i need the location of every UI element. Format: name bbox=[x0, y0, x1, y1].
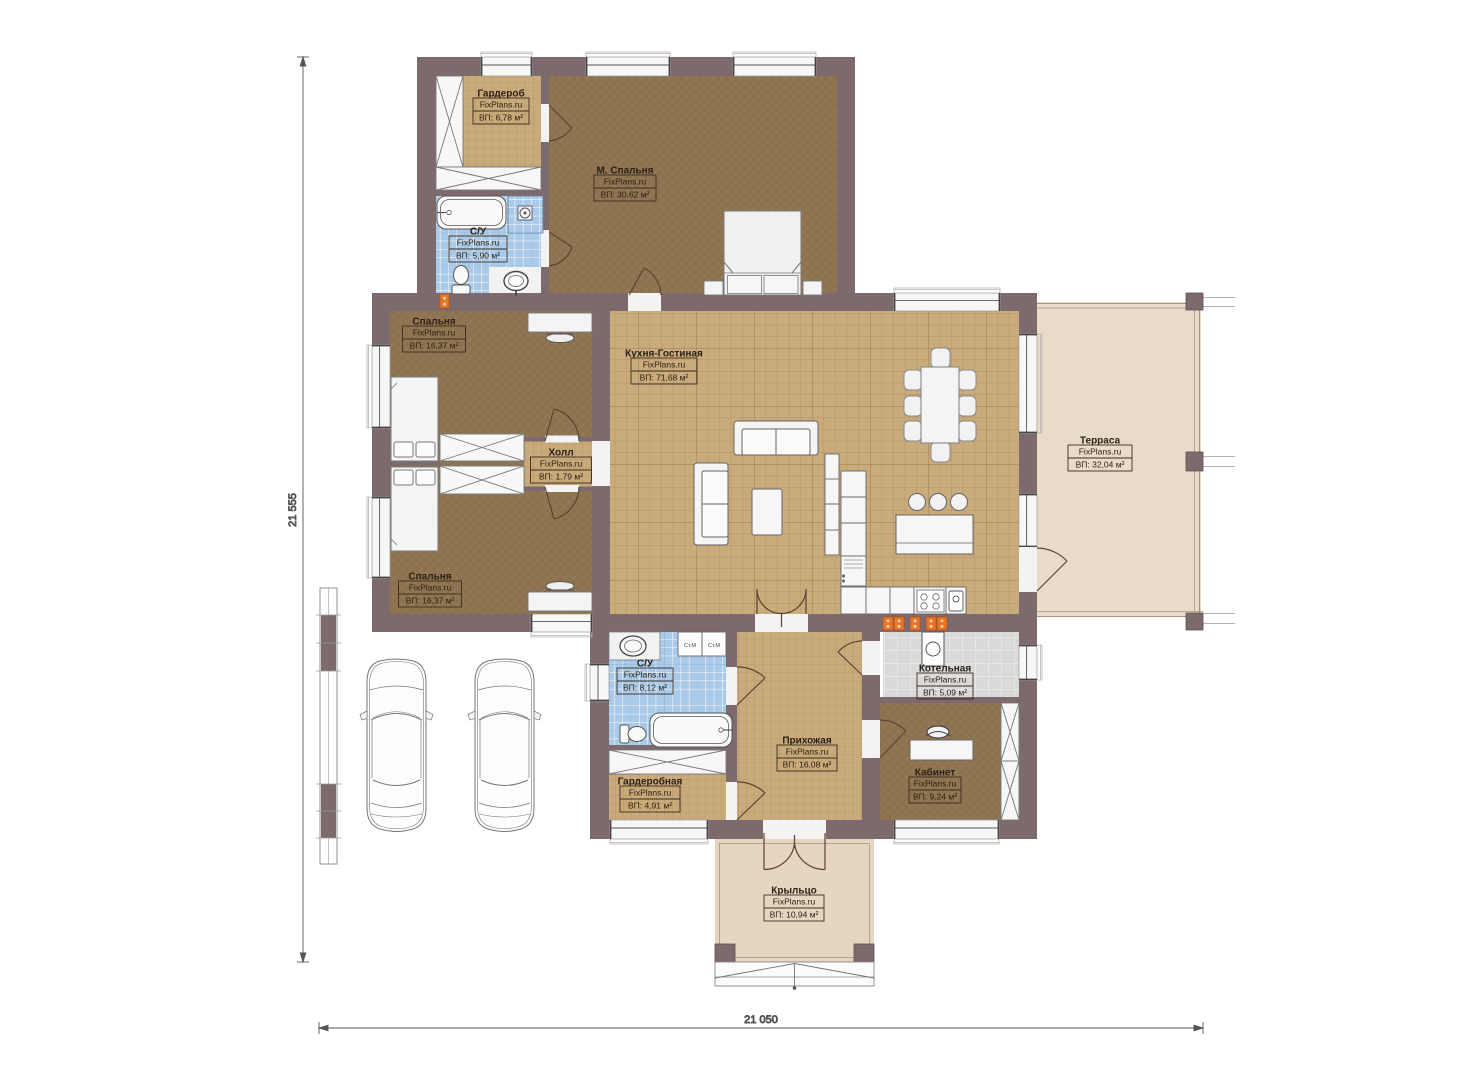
svg-text:FixPlans.ru: FixPlans.ru bbox=[786, 747, 829, 757]
svg-text:ВП: 8,12 м²: ВП: 8,12 м² bbox=[623, 683, 667, 693]
svg-text:FixPlans.ru: FixPlans.ru bbox=[643, 360, 686, 370]
svg-text:ВП: 16,37 м²: ВП: 16,37 м² bbox=[410, 341, 459, 351]
svg-text:Ст.М: Ст.М bbox=[708, 643, 720, 649]
svg-text:FixPlans.ru: FixPlans.ru bbox=[624, 670, 667, 680]
svg-text:ВП: 1,79 м²: ВП: 1,79 м² bbox=[539, 472, 583, 482]
svg-text:FixPlans.ru: FixPlans.ru bbox=[540, 459, 583, 469]
svg-text:FixPlans.ru: FixPlans.ru bbox=[480, 100, 523, 110]
svg-text:FixPlans.ru: FixPlans.ru bbox=[924, 675, 967, 685]
svg-text:ВП: 32,04 м²: ВП: 32,04 м² bbox=[1076, 460, 1125, 470]
svg-text:ВП: 6,78 м²: ВП: 6,78 м² bbox=[479, 113, 523, 123]
svg-text:ВП: 5,90 м²: ВП: 5,90 м² bbox=[456, 251, 500, 261]
svg-text:FixPlans.ru: FixPlans.ru bbox=[604, 177, 647, 187]
svg-text:ВП: 9,24 м²: ВП: 9,24 м² bbox=[913, 792, 957, 802]
svg-text:ВП: 30,62 м²: ВП: 30,62 м² bbox=[601, 190, 650, 200]
svg-text:ВП: 5,09 м²: ВП: 5,09 м² bbox=[923, 688, 967, 698]
svg-text:Ст.М: Ст.М bbox=[684, 643, 696, 649]
svg-text:FixPlans.ru: FixPlans.ru bbox=[773, 897, 816, 907]
svg-text:21 555: 21 555 bbox=[287, 493, 299, 527]
svg-text:ВП: 10,94 м²: ВП: 10,94 м² bbox=[770, 910, 819, 920]
svg-text:FixPlans.ru: FixPlans.ru bbox=[1079, 447, 1122, 457]
svg-text:ВП: 16,37 м²: ВП: 16,37 м² bbox=[406, 596, 455, 606]
svg-text:ВП: 71,68 м²: ВП: 71,68 м² bbox=[640, 373, 689, 383]
svg-text:21 050: 21 050 bbox=[744, 1014, 778, 1026]
svg-text:FixPlans.ru: FixPlans.ru bbox=[629, 788, 672, 798]
svg-text:FixPlans.ru: FixPlans.ru bbox=[457, 238, 500, 248]
svg-text:ВП: 4,91 м²: ВП: 4,91 м² bbox=[628, 801, 672, 811]
svg-text:FixPlans.ru: FixPlans.ru bbox=[914, 779, 957, 789]
svg-text:ВП: 16,08 м²: ВП: 16,08 м² bbox=[783, 760, 832, 770]
svg-text:FixPlans.ru: FixPlans.ru bbox=[413, 328, 456, 338]
svg-text:FixPlans.ru: FixPlans.ru bbox=[409, 583, 452, 593]
